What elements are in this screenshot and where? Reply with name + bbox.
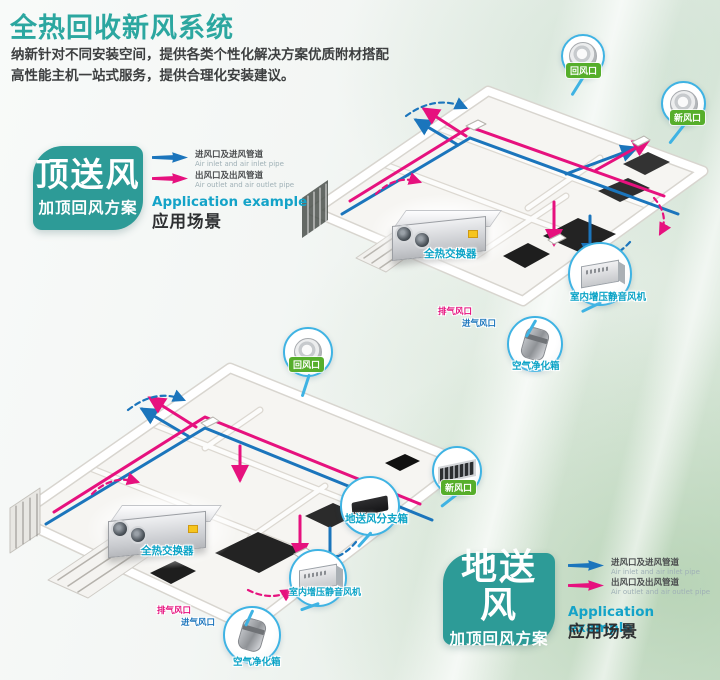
booster-fan-callout-bottom xyxy=(289,549,347,607)
legend-inlet-text: 进风口及进风管道 Air inlet and air inlet pipe xyxy=(611,558,700,577)
inlet-arrow-icon xyxy=(568,560,604,571)
exchanger-port-icon xyxy=(111,520,129,538)
legend-inlet-en: Air inlet and air inlet pipe xyxy=(195,160,284,168)
fresh-vent-label-bottom: 新风口 xyxy=(441,480,476,495)
legend-outlet-cn: 出风口及出风管道 xyxy=(611,578,710,588)
inlet-arrow-icon xyxy=(152,152,188,163)
house-diagram-top xyxy=(298,46,718,346)
subtitle-line-1: 纳新针对不同安装空间，提供各类个性化解决方案优质附材搭配 xyxy=(11,45,389,66)
exchanger-port-icon xyxy=(129,526,147,544)
air-purifier-label-top: 空气净化箱 xyxy=(512,358,560,372)
booster-fan-label-bottom: 室内增压静音风机 xyxy=(289,585,361,598)
return-vent-label-top: 回风口 xyxy=(566,63,601,78)
legend-outlet-cn: 出风口及出风管道 xyxy=(195,171,294,181)
application-example-cn-bottom: 应用场景 xyxy=(568,618,638,642)
legend-outlet-text: 出风口及出风管道 Air outlet and air outlet pipe xyxy=(611,578,710,597)
plan-badge-top-subtitle: 加顶回风方案 xyxy=(33,196,143,218)
window-slats-bottom xyxy=(10,488,40,553)
plan-badge-bottom: 地送风 加顶回风方案 xyxy=(443,553,555,645)
legend-outlet-top: 出风口及出风管道 Air outlet and air outlet pipe xyxy=(152,171,294,190)
fresh-vent-label-top: 新风口 xyxy=(670,110,705,125)
exhaust-vent-label-bottom: 排气风口 xyxy=(157,604,191,616)
air-purifier-label-bottom: 空气净化箱 xyxy=(233,654,281,668)
air-purifier-icon xyxy=(236,616,268,653)
heat-exchanger-label-bottom: 全热交换器 xyxy=(141,543,194,558)
floor-supply-box-callout xyxy=(340,476,400,536)
intake-vent-label-bottom: 进气风口 xyxy=(181,616,215,628)
poster-canvas: 全热回收新风系统 纳新针对不同安装空间，提供各类个性化解决方案优质附材搭配 高性… xyxy=(0,0,720,680)
page-title: 全热回收新风系统 xyxy=(10,6,234,45)
plan-badge-bottom-subtitle: 加顶回风方案 xyxy=(443,627,555,649)
legend-inlet-top: 进风口及进风管道 Air inlet and air inlet pipe xyxy=(152,150,284,169)
warning-sticker-icon xyxy=(188,525,198,533)
exchanger-port-icon xyxy=(395,225,413,243)
legend-outlet-en: Air outlet and air outlet pipe xyxy=(611,588,710,596)
legend-outlet-text: 出风口及出风管道 Air outlet and air outlet pipe xyxy=(195,171,294,190)
return-vent-label-bottom: 回风口 xyxy=(289,357,324,372)
house-top-structure xyxy=(302,91,703,301)
legend-outlet-bottom: 出风口及出风管道 Air outlet and air outlet pipe xyxy=(568,578,710,597)
booster-fan-icon xyxy=(581,260,619,289)
plan-badge-bottom-title: 地送风 xyxy=(443,549,555,625)
legend-inlet-text: 进风口及进风管道 Air inlet and air inlet pipe xyxy=(195,150,284,169)
subtitle-line-2: 高性能主机一站式服务，提供合理化安装建议。 xyxy=(11,66,389,87)
legend-inlet-cn: 进风口及进风管道 xyxy=(195,150,284,160)
outlet-arrow-icon xyxy=(152,173,188,184)
intake-vent-label-top: 进气风口 xyxy=(462,317,496,329)
booster-fan-label-top: 室内增压静音风机 xyxy=(570,289,646,303)
floor-supply-box-label: 地送风分支箱 xyxy=(345,511,408,526)
application-example-cn-top: 应用场景 xyxy=(152,208,222,232)
legend-inlet-bottom: 进风口及进风管道 Air inlet and air inlet pipe xyxy=(568,558,700,577)
page-subtitle: 纳新针对不同安装空间，提供各类个性化解决方案优质附材搭配 高性能主机一站式服务，… xyxy=(11,45,389,87)
heat-exchanger-label-top: 全热交换器 xyxy=(424,246,477,261)
plan-badge-top-title: 顶送风 xyxy=(33,158,143,193)
plan-badge-top: 顶送风 加顶回风方案 xyxy=(33,146,143,230)
legend-inlet-cn: 进风口及进风管道 xyxy=(611,558,700,568)
exhaust-vent-label-top: 排气风口 xyxy=(438,305,472,317)
outlet-arrow-icon xyxy=(568,580,604,591)
warning-sticker-icon xyxy=(468,230,478,238)
legend-inlet-en: Air inlet and air inlet pipe xyxy=(611,568,700,576)
legend-outlet-en: Air outlet and air outlet pipe xyxy=(195,181,294,189)
